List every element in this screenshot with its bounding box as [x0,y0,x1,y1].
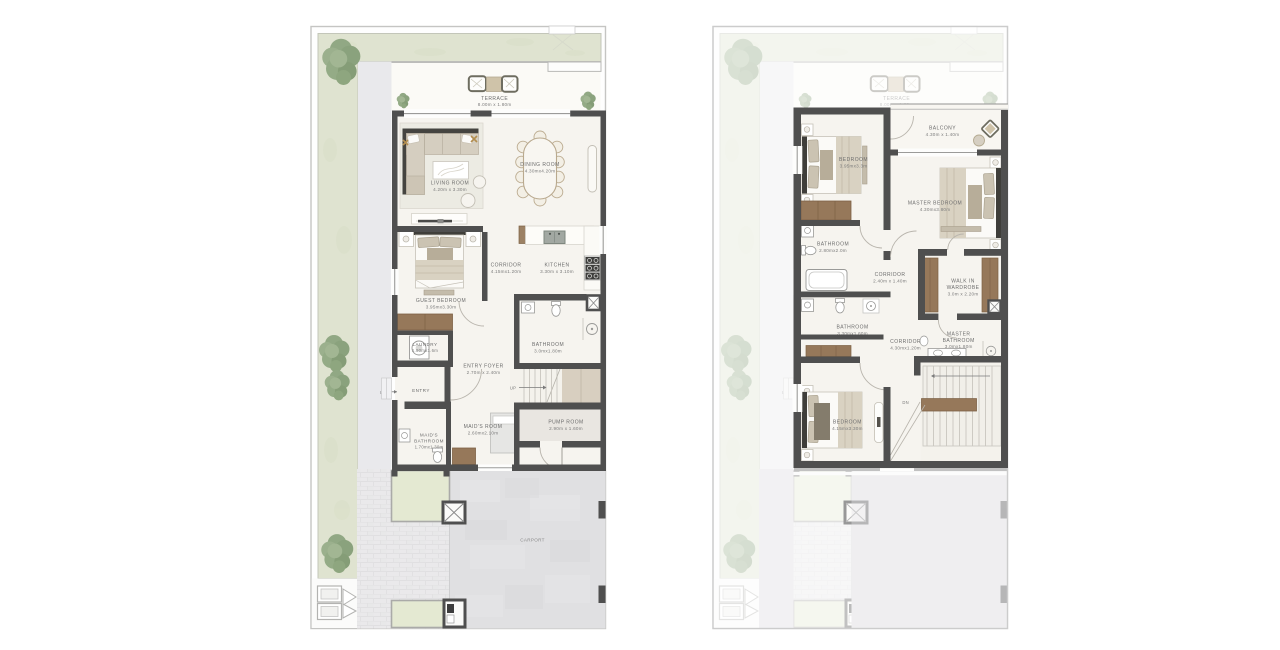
svg-text:CORRIDOR: CORRIDOR [491,263,522,269]
svg-text:PUMP ROOM: PUMP ROOM [548,420,583,426]
svg-text:1.70mx1.30m: 1.70mx1.30m [415,445,444,450]
svg-text:1.90mx1.6m: 1.90mx1.6m [412,348,438,353]
svg-text:4.30mx3.80m: 4.30mx3.80m [920,207,951,212]
svg-text:BATHROOM: BATHROOM [836,325,868,331]
svg-text:LAUNDRY: LAUNDRY [412,342,437,347]
svg-text:CORRIDOR: CORRIDOR [890,339,921,345]
svg-text:LIVING ROOM: LIVING ROOM [431,181,469,187]
svg-text:BATHROOM: BATHROOM [414,439,444,444]
svg-text:2.70m x 2.40m: 2.70m x 2.40m [467,370,501,375]
svg-text:MAID'S ROOM: MAID'S ROOM [464,424,503,430]
svg-text:2.40m x 1.40m: 2.40m x 1.40m [873,278,907,283]
svg-text:MASTER BEDROOM: MASTER BEDROOM [908,201,962,207]
svg-text:4.30mx1.20m: 4.30mx1.20m [890,345,921,350]
svg-text:MAID'S: MAID'S [420,433,438,438]
svg-text:4.20m x 3.30m: 4.20m x 3.30m [433,187,467,192]
svg-text:3.30m x 3.10m: 3.30m x 3.10m [540,269,574,274]
svg-text:ENTRY FOYER: ENTRY FOYER [463,364,503,370]
svg-text:BEDROOM: BEDROOM [833,420,862,426]
svg-text:CARPORT: CARPORT [520,538,544,543]
svg-text:2.60mx2.10m: 2.60mx2.10m [468,430,499,435]
svg-text:4.30mx4.20m: 4.30mx4.20m [525,168,556,173]
svg-text:KITCHEN: KITCHEN [544,263,569,269]
svg-text:UP: UP [510,386,516,391]
svg-text:BATHROOM: BATHROOM [532,342,564,348]
svg-text:BATHROOM: BATHROOM [817,242,849,248]
svg-text:BALCONY: BALCONY [929,126,956,132]
svg-text:BEDROOM: BEDROOM [839,157,868,163]
svg-text:ENTRY: ENTRY [412,388,430,393]
svg-text:WALK IN: WALK IN [951,279,975,285]
svg-text:8.00m x 1.80m: 8.00m x 1.80m [478,102,512,107]
svg-text:4.15mx1.20m: 4.15mx1.20m [491,269,522,274]
svg-text:4.30m x 1.40m: 4.30m x 1.40m [926,132,960,137]
svg-text:3.95mx3.30m: 3.95mx3.30m [426,304,457,309]
svg-text:DINING ROOM: DINING ROOM [520,162,559,168]
svg-text:3.95mx3.3m: 3.95mx3.3m [840,163,868,168]
svg-text:3.0m x 2.20m: 3.0m x 2.20m [948,291,979,296]
svg-text:WARDROBE: WARDROBE [947,285,980,291]
svg-text:DN: DN [902,400,909,405]
svg-text:4.15mx3.30m: 4.15mx3.30m [832,426,863,431]
svg-text:CORRIDOR: CORRIDOR [875,272,906,278]
svg-text:2.90m x 1.60m: 2.90m x 1.60m [549,426,583,431]
svg-text:3.0mx1.80m: 3.0mx1.80m [534,348,562,353]
svg-text:2.80mx2.0m: 2.80mx2.0m [819,248,847,253]
svg-text:BATHROOM: BATHROOM [943,338,975,344]
